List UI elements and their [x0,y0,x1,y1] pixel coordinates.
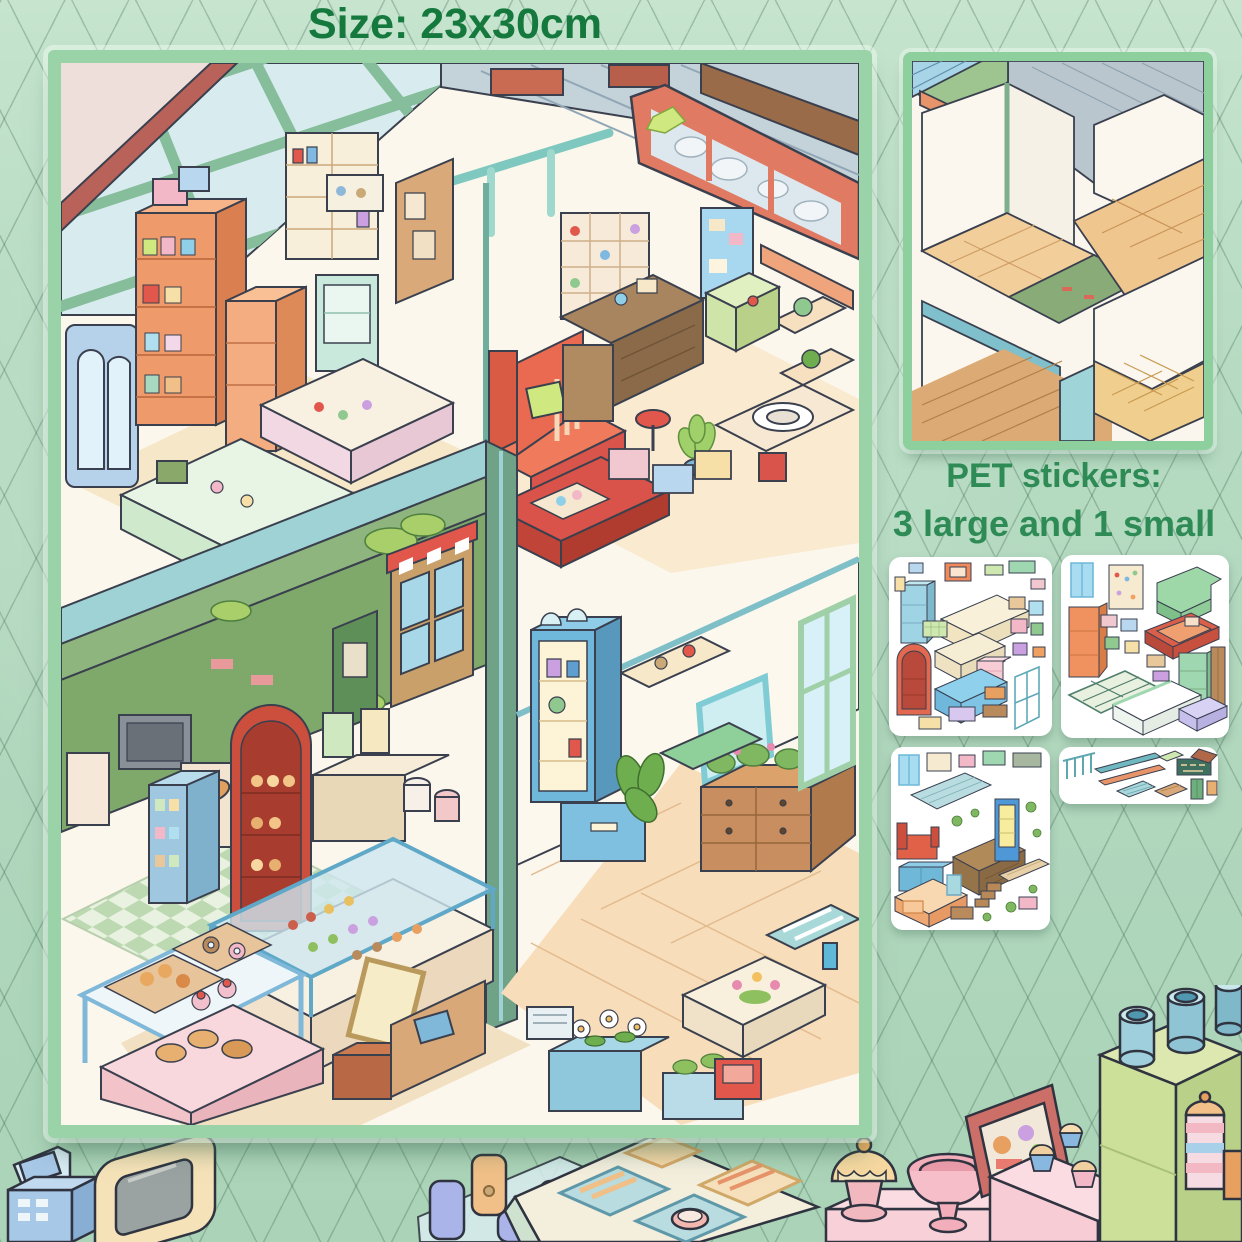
tray-counter [505,1137,818,1242]
size-label: Size: 23x30cm [150,0,760,49]
sticker-sheet-large-2 [1061,555,1229,738]
poster-illustration [61,63,859,1125]
product-image: Size: 23x30cm [0,0,1242,1242]
awning-window [387,521,477,707]
poster-frame [48,50,872,1138]
sticker-sheet-large-3 [891,747,1050,930]
base-preview-frame [903,52,1213,450]
sticker-sheet-small [1059,747,1218,804]
retro-tv [95,1131,215,1242]
cash-register [8,1147,98,1242]
striped-canister [1186,1092,1224,1189]
pet-sticker-note: PET stickers: 3 large and 1 small [876,453,1232,547]
sticker-sheet-large-1 [889,557,1052,736]
green-cabinet [1100,985,1242,1242]
pet-note-line2: 3 large and 1 small [876,500,1232,547]
pet-note-line1: PET stickers: [876,453,1232,500]
cake-display [826,985,1242,1242]
base-preview-illustration [912,61,1204,441]
open-window [801,599,853,787]
